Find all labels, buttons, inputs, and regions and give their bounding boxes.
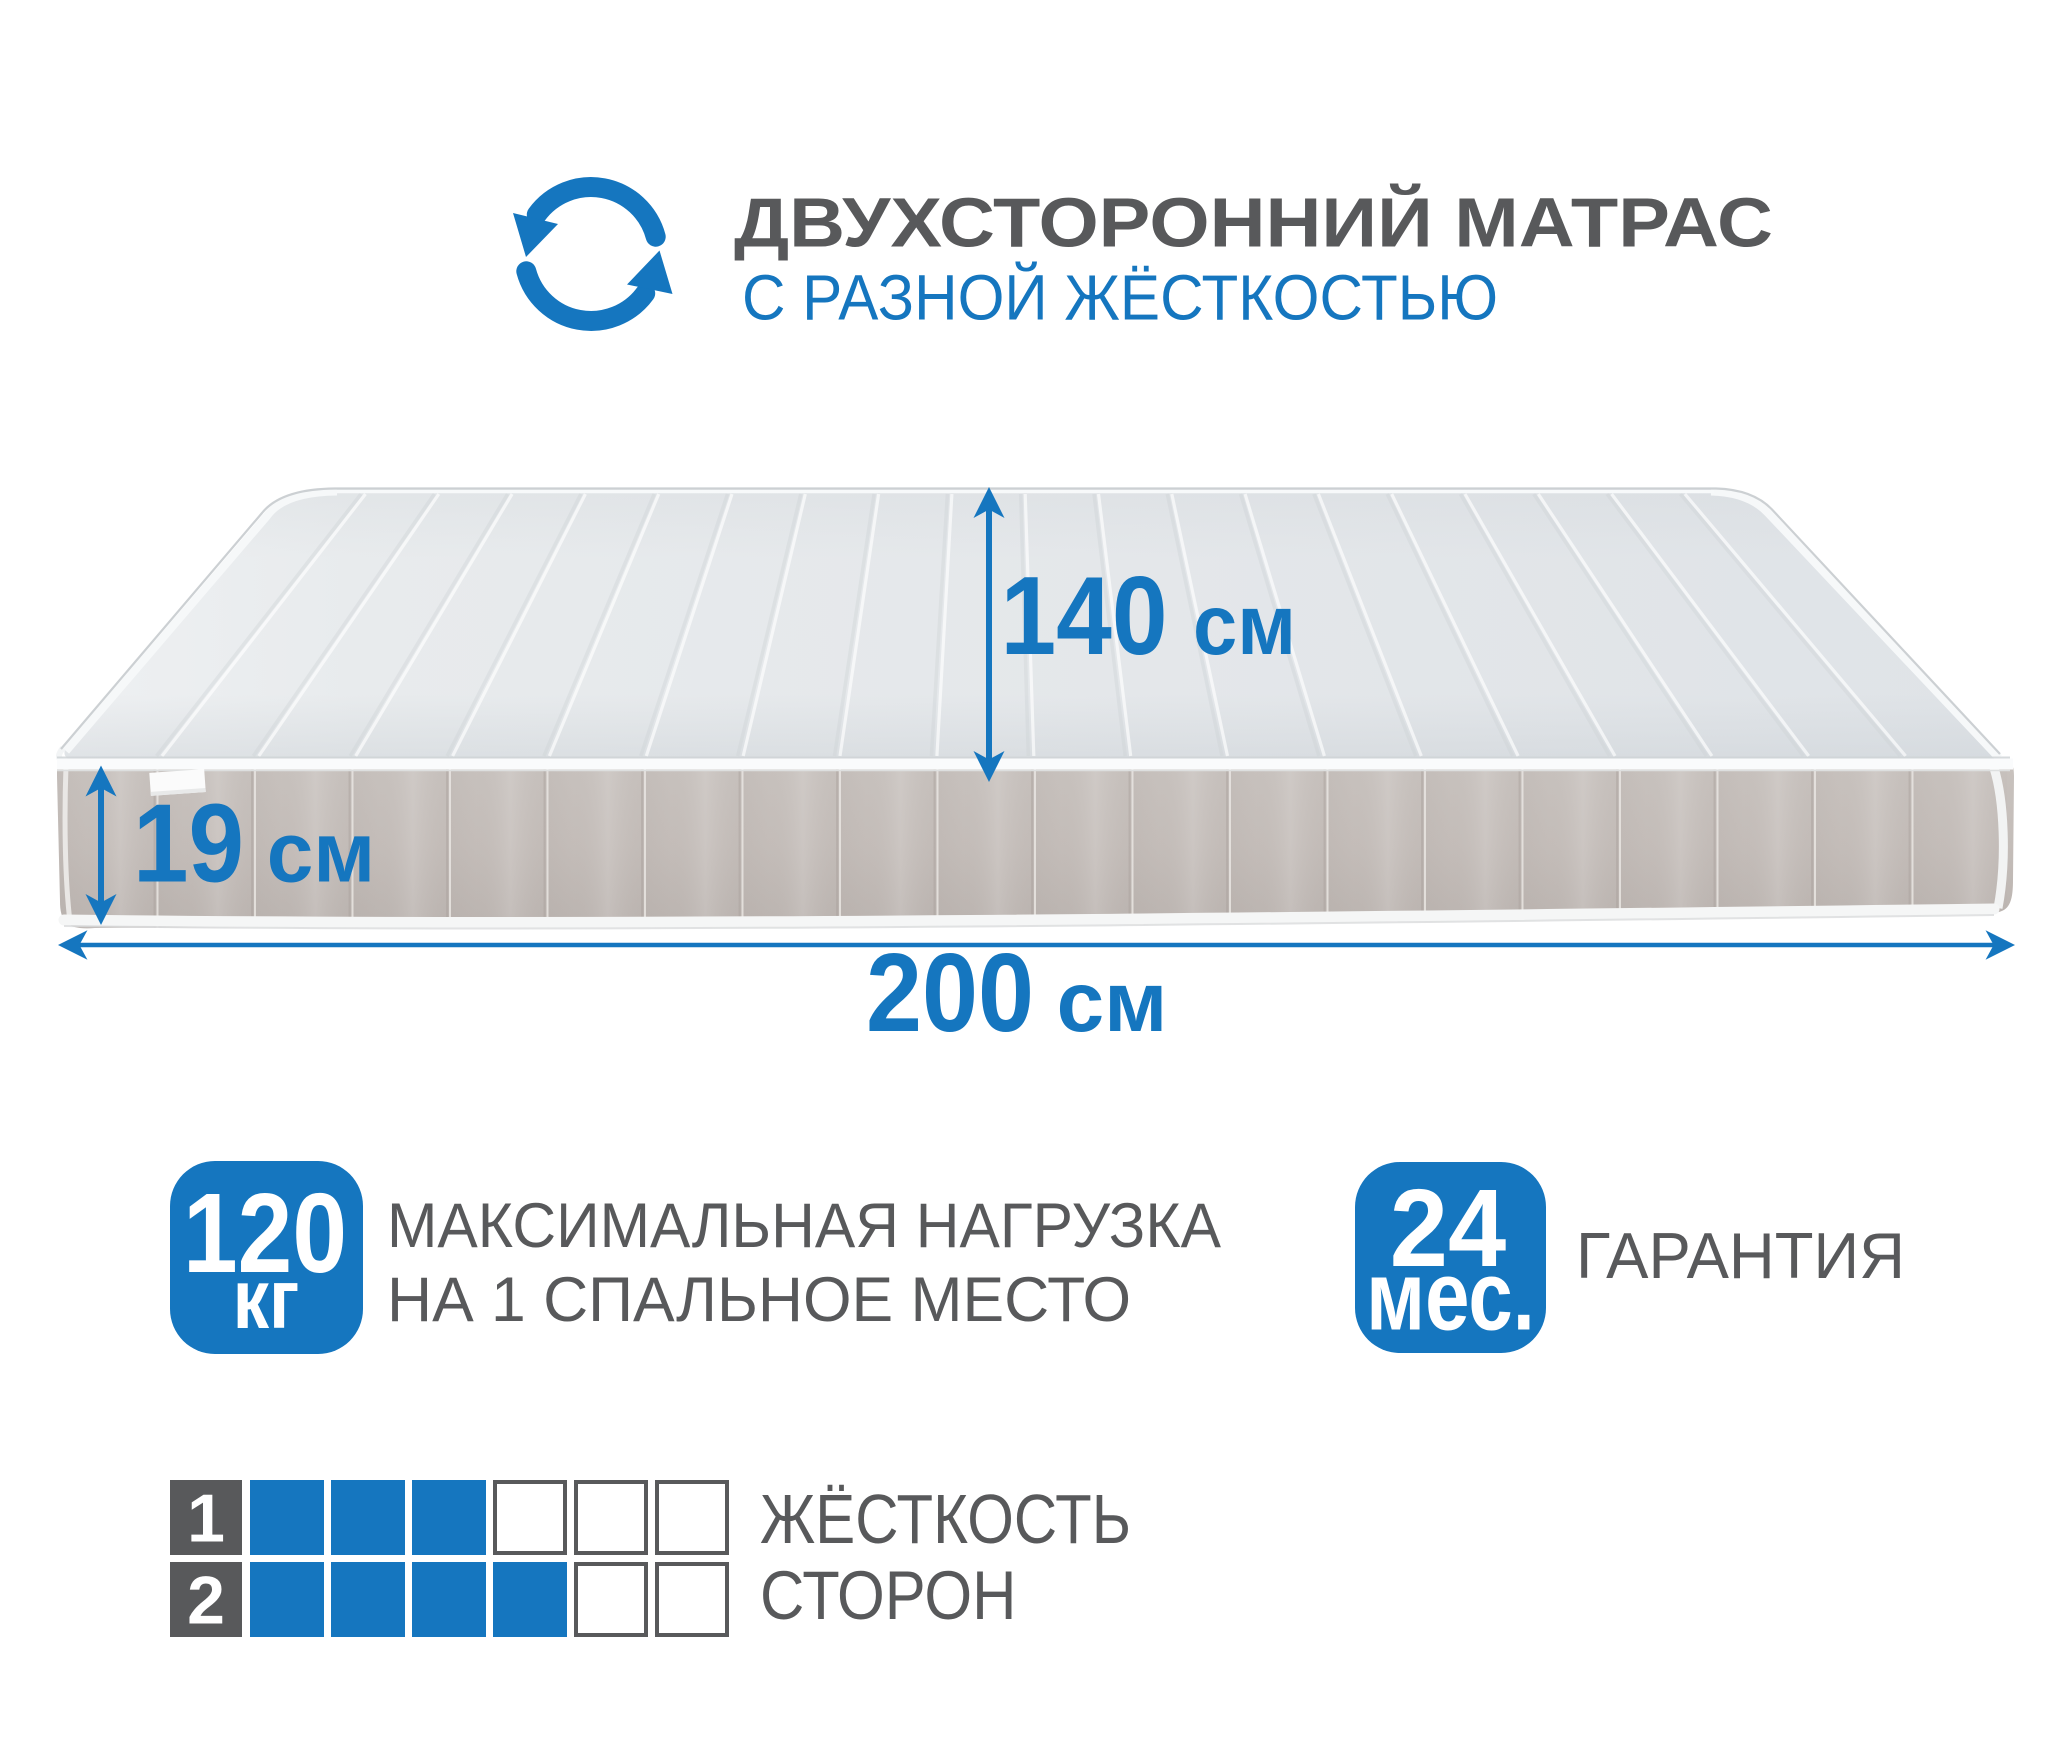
svg-text:см: см	[267, 806, 376, 901]
svg-text:кг: кг	[233, 1252, 300, 1346]
svg-text:С РАЗНОЙ ЖЁСТКОСТЬЮ: С РАЗНОЙ ЖЁСТКОСТЬЮ	[742, 261, 1498, 334]
svg-text:ЖЁСТКОСТЬ: ЖЁСТКОСТЬ	[760, 1480, 1131, 1558]
svg-text:2: 2	[187, 1562, 225, 1638]
svg-text:140: 140	[1001, 554, 1168, 678]
svg-text:МАКСИМАЛЬНАЯ НАГРУЗКА: МАКСИМАЛЬНАЯ НАГРУЗКА	[387, 1191, 1221, 1261]
svg-text:СТОРОН: СТОРОН	[760, 1557, 1017, 1634]
svg-text:см: см	[1057, 955, 1168, 1050]
svg-text:1: 1	[187, 1480, 225, 1556]
svg-text:см: см	[1193, 578, 1296, 673]
svg-text:НА 1 СПАЛЬНОЕ МЕСТО: НА 1 СПАЛЬНОЕ МЕСТО	[387, 1265, 1131, 1335]
svg-text:200: 200	[866, 931, 1034, 1055]
svg-text:ДВУХСТОРОННИЙ МАТРАС: ДВУХСТОРОННИЙ МАТРАС	[734, 183, 1773, 262]
svg-text:19: 19	[133, 782, 244, 906]
svg-text:мес.: мес.	[1366, 1241, 1535, 1351]
svg-text:ГАРАНТИЯ: ГАРАНТИЯ	[1576, 1219, 1905, 1292]
